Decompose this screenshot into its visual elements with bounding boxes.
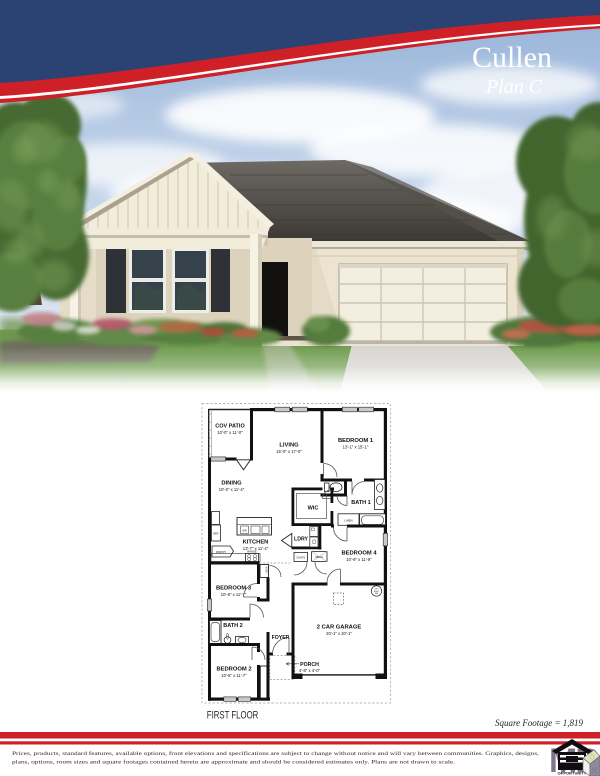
svg-text:WIC: WIC — [308, 506, 319, 512]
svg-text:LIVING: LIVING — [279, 443, 299, 449]
svg-text:10'-0" x 11'-0": 10'-0" x 11'-0" — [217, 430, 243, 435]
svg-text:20'-1" x 20'-1": 20'-1" x 20'-1" — [326, 631, 352, 636]
svg-text:plans, options, room sizes and: plans, options, room sizes and square fo… — [12, 759, 455, 766]
svg-text:BATH 1: BATH 1 — [351, 500, 370, 506]
svg-text:WH: WH — [375, 593, 379, 595]
svg-text:OPPORTUNITY: OPPORTUNITY — [558, 771, 587, 776]
svg-text:10'-8" x 11'-7": 10'-8" x 11'-7" — [221, 592, 247, 597]
svg-text:LINEN: LINEN — [344, 519, 352, 523]
svg-text:10'-9" x 11'-9": 10'-9" x 11'-9" — [346, 557, 372, 562]
svg-text:DINING: DINING — [221, 481, 242, 487]
svg-text:Cullen: Cullen — [472, 41, 552, 74]
svg-text:2 CAR GARAGE: 2 CAR GARAGE — [317, 625, 362, 631]
svg-text:Square Footage = 1,819: Square Footage = 1,819 — [495, 719, 583, 729]
svg-text:BATH 2: BATH 2 — [223, 623, 242, 629]
svg-text:COATS: COATS — [296, 555, 305, 559]
svg-text:BEDROOM 2: BEDROOM 2 — [216, 667, 251, 673]
svg-text:Plan C: Plan C — [485, 76, 543, 98]
svg-text:4'-8" x 4'-0": 4'-8" x 4'-0" — [299, 668, 321, 673]
svg-text:BEDROOM 4: BEDROOM 4 — [341, 551, 377, 557]
svg-text:MECH: MECH — [315, 555, 323, 559]
svg-text:13'-1" x 15'-1": 13'-1" x 15'-1" — [343, 445, 369, 450]
svg-text:BEDROOM 1: BEDROOM 1 — [338, 438, 374, 444]
svg-text:LINEN: LINEN — [266, 566, 269, 573]
svg-text:FIRST FLOOR: FIRST FLOOR — [207, 710, 259, 722]
svg-text:DW: DW — [242, 529, 247, 533]
svg-text:COV PATIO: COV PATIO — [215, 424, 245, 430]
svg-text:10'-8" x 11'-7": 10'-8" x 11'-7" — [221, 673, 247, 678]
svg-text:15'-0" x 17'-0": 15'-0" x 17'-0" — [276, 449, 302, 454]
svg-text:RANGE: RANGE — [247, 550, 256, 554]
svg-text:10'-0" x 11'-4": 10'-0" x 11'-4" — [219, 487, 245, 492]
svg-text:KITCHEN: KITCHEN — [243, 540, 269, 546]
svg-text:Prices, products, standard fea: Prices, products, standard features, ava… — [12, 750, 539, 757]
svg-text:LDRY: LDRY — [294, 537, 308, 543]
svg-text:REF: REF — [213, 532, 219, 536]
